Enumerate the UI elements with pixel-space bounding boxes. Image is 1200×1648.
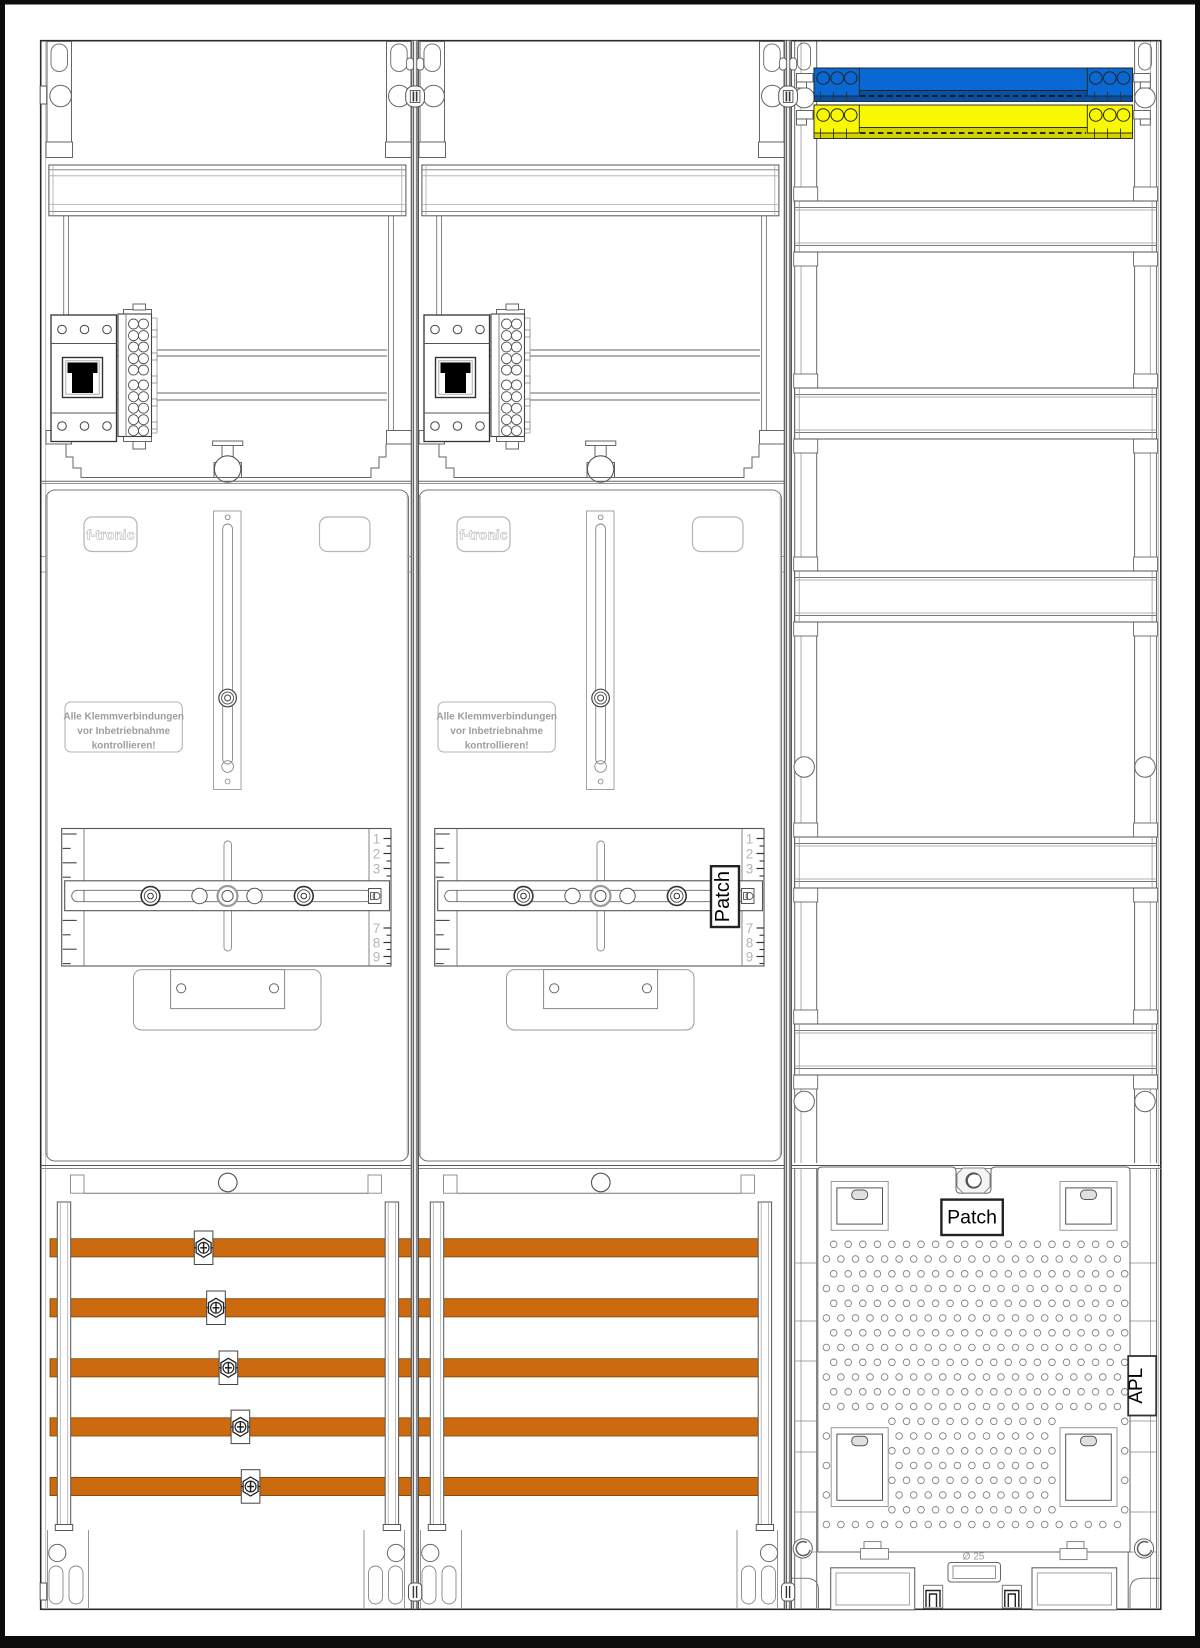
svg-text:9: 9	[746, 949, 754, 964]
svg-text:2: 2	[746, 846, 754, 861]
svg-text:3: 3	[746, 861, 754, 876]
svg-text:Alle Klemmverbindungen: Alle Klemmverbindungen	[436, 712, 557, 723]
svg-text:8: 8	[746, 935, 754, 950]
svg-text:vor Inbetriebnahme: vor Inbetriebnahme	[450, 726, 543, 737]
svg-text:Alle Klemmverbindungen: Alle Klemmverbindungen	[63, 712, 184, 723]
svg-text:1: 1	[373, 831, 381, 846]
svg-text:7: 7	[746, 921, 754, 936]
svg-text:APL: APL	[1126, 1368, 1147, 1404]
svg-text:2: 2	[373, 846, 381, 861]
svg-text:kontrollieren!: kontrollieren!	[92, 741, 156, 752]
svg-text:Patch: Patch	[947, 1207, 997, 1229]
svg-text:vor Inbetriebnahme: vor Inbetriebnahme	[77, 726, 170, 737]
svg-text:Ø 25: Ø 25	[963, 1552, 985, 1563]
svg-text:9: 9	[373, 949, 381, 964]
svg-text:kontrollieren!: kontrollieren!	[465, 741, 529, 752]
svg-text:1: 1	[746, 831, 754, 846]
svg-text:f-tronic: f-tronic	[86, 527, 134, 543]
svg-text:7: 7	[373, 921, 381, 936]
svg-text:8: 8	[373, 935, 381, 950]
svg-text:Patch: Patch	[712, 871, 734, 922]
svg-text:3: 3	[373, 861, 381, 876]
svg-text:f-tronic: f-tronic	[459, 527, 507, 543]
